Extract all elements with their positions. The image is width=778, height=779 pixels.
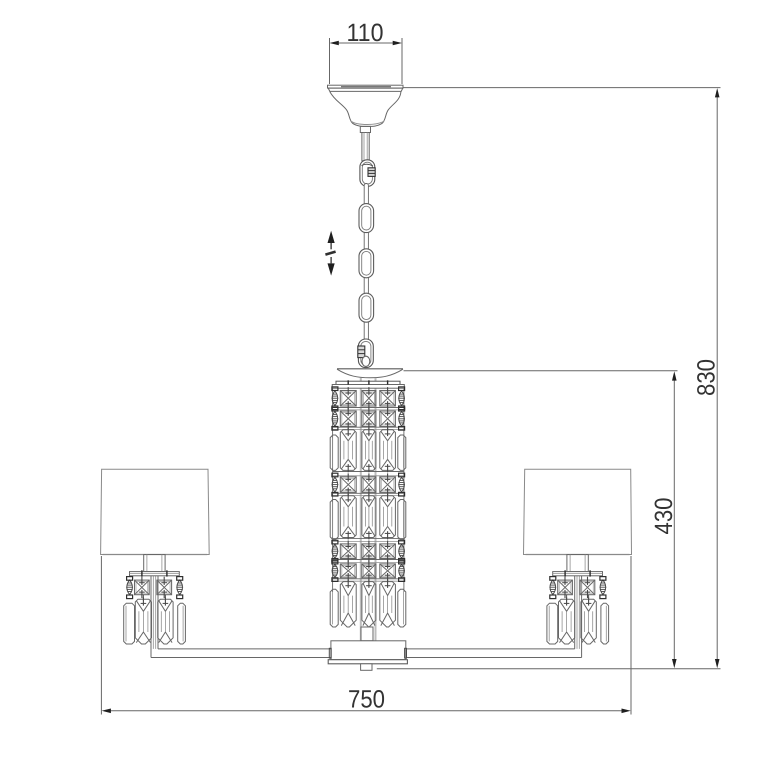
svg-text:430: 430 xyxy=(650,498,678,535)
svg-text:830: 830 xyxy=(693,359,721,396)
svg-text:750: 750 xyxy=(348,686,385,714)
